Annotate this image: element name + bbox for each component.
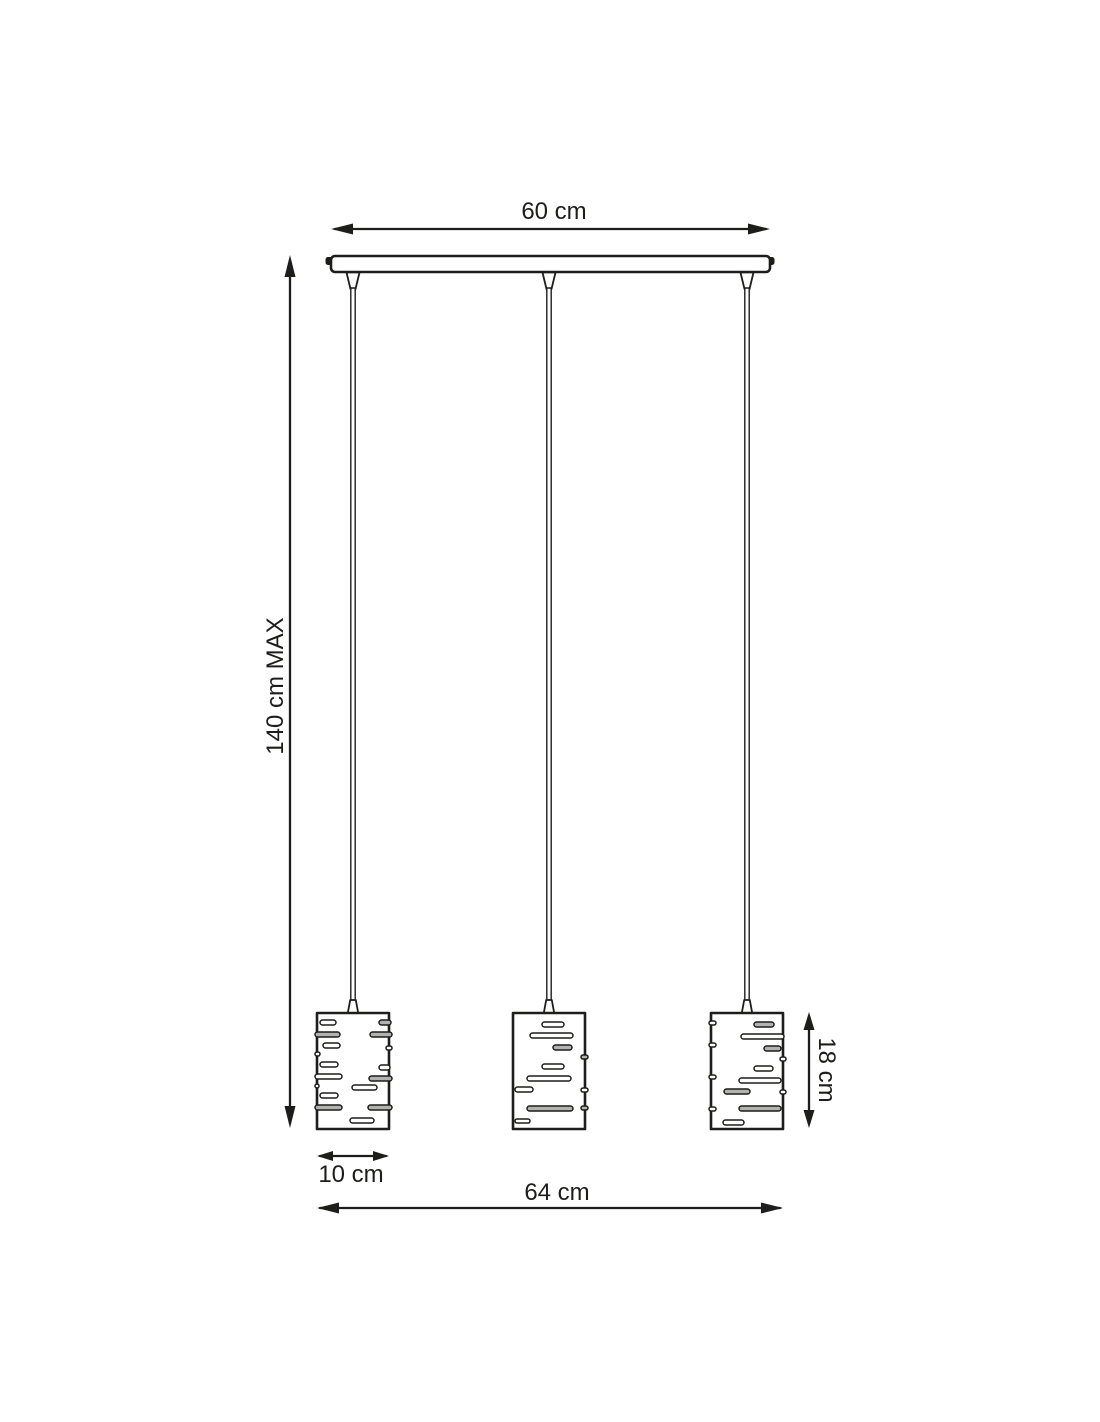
dim-label-max-drop: 140 cm MAX bbox=[264, 617, 288, 754]
ceiling-bar bbox=[326, 256, 775, 272]
dim-label-overall-width: 64 cm bbox=[524, 1181, 589, 1205]
lampshade-left bbox=[315, 1013, 392, 1129]
dim-label-shade-width: 10 cm bbox=[318, 1163, 383, 1187]
pendant-cord-left bbox=[347, 273, 360, 1014]
dim-label-shade-height: 18 cm bbox=[814, 1037, 838, 1102]
dimension-diagram: 60 cm 140 cm MAX 10 cm 64 cm 18 cm bbox=[0, 0, 1100, 1422]
lampshade-right bbox=[709, 1013, 786, 1129]
pendant-cord-right bbox=[741, 273, 754, 1014]
pendant-cord-center bbox=[543, 273, 556, 1014]
lampshade-center bbox=[513, 1013, 588, 1129]
dim-arrow-canopy-width bbox=[331, 224, 770, 235]
dim-label-canopy-width: 60 cm bbox=[521, 200, 586, 224]
dim-arrow-shade-width bbox=[317, 1151, 389, 1161]
